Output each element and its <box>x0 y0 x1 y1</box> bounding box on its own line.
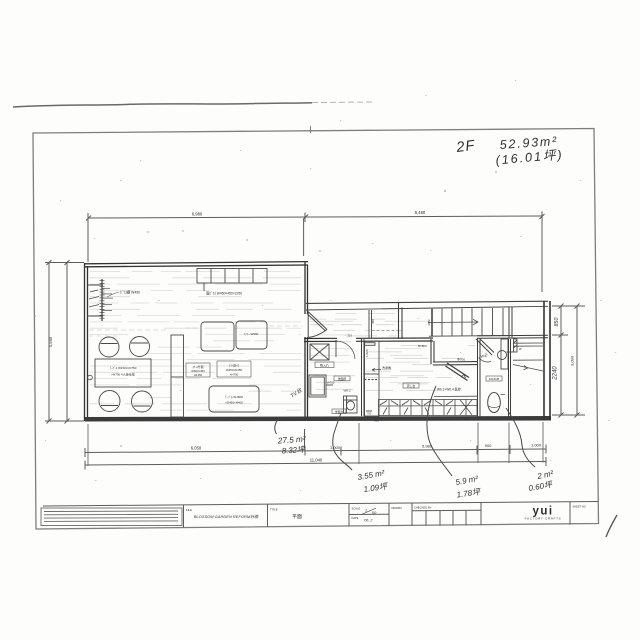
svg-text:ﾃｰﾌﾞﾙ W1500×D750: ﾃｰﾌﾞﾙ W1500×D750 <box>110 365 137 370</box>
svg-text:2人掛ｲｽ: 2人掛ｲｽ <box>229 363 240 368</box>
svg-text:ｶﾞﾗｽ棚 W450: ｶﾞﾗｽ棚 W450 <box>120 290 140 295</box>
svg-text:700: 700 <box>367 412 372 416</box>
svg-text:8.32坪: 8.32坪 <box>282 445 307 456</box>
svg-text:W6.1×W6.4 既存: W6.1×W6.4 既存 <box>437 387 462 392</box>
svg-text:CHECKED BY: CHECKED BY <box>414 505 432 509</box>
svg-text:H1350: H1350 <box>194 373 203 377</box>
svg-text:BLOSSOM GARDEN REFORM計画: BLOSSOM GARDEN REFORM計画 <box>194 514 259 519</box>
svg-text:50: 50 <box>372 510 377 515</box>
svg-text:ｿﾌｧｰ W900: ｿﾌｧｰ W900 <box>244 332 259 336</box>
svg-text:1,820: 1,820 <box>365 349 369 357</box>
svg-text:×D450×H400: ×D450×H400 <box>225 401 243 405</box>
svg-text:TITLE: TITLE <box>270 508 278 512</box>
svg-text:2F: 2F <box>455 138 477 156</box>
svg-text:850: 850 <box>554 318 560 327</box>
svg-text:W750: W750 <box>327 381 335 385</box>
svg-text:6,050: 6,050 <box>191 446 202 451</box>
svg-text:1616UB: 1616UB <box>489 377 500 381</box>
svg-text:4,550: 4,550 <box>48 336 53 347</box>
svg-text:FACTORY CRAFTS: FACTORY CRAFTS <box>525 517 562 521</box>
svg-text:6,480: 6,480 <box>415 210 426 215</box>
svg-text:洗面台: 洗面台 <box>335 410 344 414</box>
svg-text:W8.2: W8.2 <box>344 389 351 393</box>
svg-text:SCALE: SCALE <box>352 507 361 511</box>
svg-text:洗面所: 洗面所 <box>338 376 347 381</box>
svg-text:×H700 4人掛仕様: ×H700 4人掛仕様 <box>111 372 134 377</box>
svg-text:FILE: FILE <box>186 508 192 512</box>
svg-text:1: 1 <box>365 508 367 513</box>
svg-text:→350: →350 <box>344 334 352 338</box>
svg-text:1,000: 1,000 <box>531 443 542 448</box>
svg-text:3,090: 3,090 <box>570 355 575 366</box>
svg-text:SHEET NO: SHEET NO <box>573 505 586 509</box>
svg-text:流し台: 流し台 <box>407 383 416 388</box>
svg-text:6,980: 6,980 <box>192 212 203 217</box>
svg-text:予700: 予700 <box>457 357 465 362</box>
svg-text:900: 900 <box>485 443 492 448</box>
svg-text:'06. 2: '06. 2 <box>364 519 373 523</box>
svg-text:B=800: B=800 <box>418 344 427 348</box>
svg-text:平面: 平面 <box>292 514 302 520</box>
svg-text:900: 900 <box>464 417 469 421</box>
svg-text:ﾃｰﾌﾞﾙ W1800: ﾃｰﾌﾞﾙ W1800 <box>225 394 243 399</box>
svg-text:1,000: 1,000 <box>330 445 341 450</box>
svg-text:DATE: DATE <box>352 516 359 520</box>
svg-text:900: 900 <box>374 419 379 423</box>
svg-text:物入れ: 物入れ <box>320 363 329 368</box>
svg-text:2240: 2240 <box>553 366 559 381</box>
svg-text:DRAWN: DRAWN <box>392 506 402 510</box>
svg-text:W450×D450: W450×D450 <box>226 368 243 372</box>
svg-text:×H700: ×H700 <box>230 373 239 377</box>
svg-text:11,040: 11,040 <box>310 458 323 463</box>
svg-text:洗濯機: 洗濯機 <box>382 365 391 370</box>
svg-text:面ｶﾞﾗｽ W450×450×2250: 面ｶﾞﾗｽ W450×450×2250 <box>206 291 242 296</box>
